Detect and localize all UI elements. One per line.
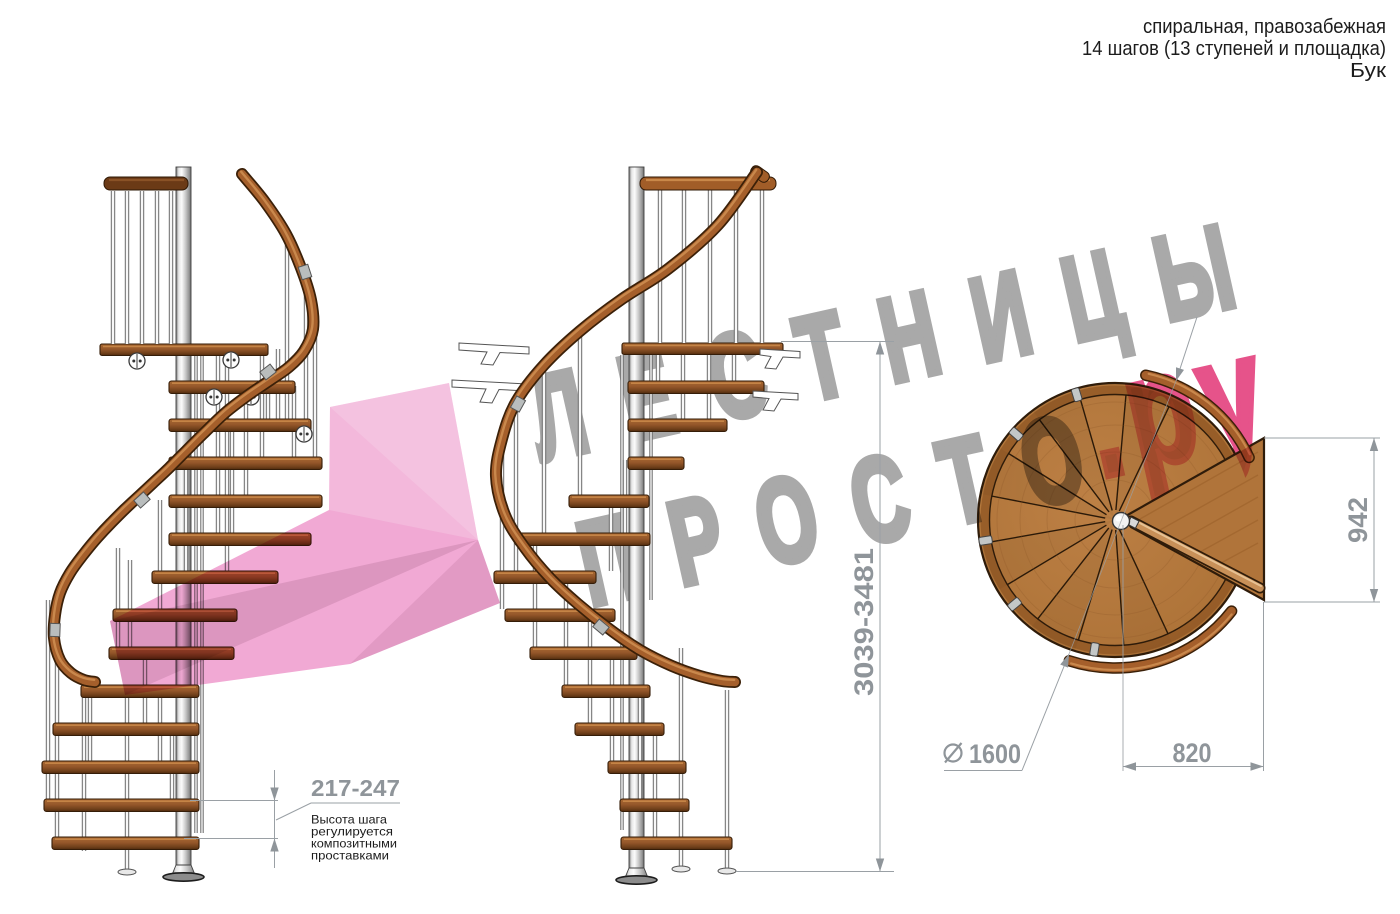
svg-text:820: 820 (1173, 738, 1212, 768)
svg-text:217-247: 217-247 (311, 775, 400, 801)
svg-text:942: 942 (1343, 497, 1373, 543)
svg-text:3039-3481: 3039-3481 (849, 548, 879, 696)
svg-text:проставками: проставками (311, 849, 389, 863)
svg-text:спиральная, правозабежная: спиральная, правозабежная (1143, 15, 1386, 38)
svg-text:14 шагов (13 ступеней и площад: 14 шагов (13 ступеней и площадка) (1082, 37, 1386, 60)
svg-text:Бук: Бук (1350, 59, 1387, 82)
svg-text:1600: 1600 (969, 739, 1021, 769)
